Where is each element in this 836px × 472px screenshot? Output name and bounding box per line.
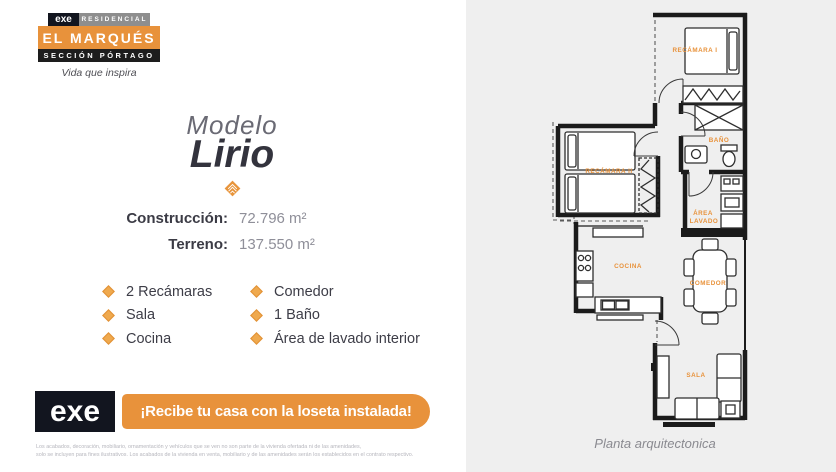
chair-icon	[684, 259, 694, 276]
disclaimer-line2: solo se incluyen para fines ilustrativos…	[36, 451, 448, 459]
feature-list: 2 Recámaras Sala Cocina Comedor 1 Baño	[104, 280, 444, 351]
chair-icon	[684, 289, 694, 306]
chair-icon	[726, 259, 736, 276]
room-label-comedor: COMEDOR	[690, 280, 726, 287]
diamond-bullet-icon	[102, 309, 115, 322]
diamond-bullet-icon	[250, 309, 263, 322]
room-label-bano: BAÑO	[709, 135, 730, 144]
toilet-icon	[721, 145, 737, 151]
feature-item: Sala	[104, 304, 252, 328]
promo-banner: ¡Recibe tu casa con la loseta instalada!	[122, 394, 430, 429]
specs: Construcción: 72.796 m² Terreno: 137.550…	[35, 210, 405, 262]
feature-label: Sala	[126, 307, 155, 323]
feature-label: Comedor	[274, 284, 334, 300]
model-name: Lirio	[100, 133, 364, 177]
exe-logo-small: exe	[48, 13, 79, 26]
land-value: 137.550 m²	[239, 236, 315, 253]
brand-tagline: Vida que inspira	[38, 67, 160, 79]
section-band: SECCIÓN PÓRTAGO	[38, 49, 160, 62]
diamond-bullet-icon	[102, 332, 115, 345]
diamond-bullet-icon	[250, 285, 263, 298]
legal-disclaimer: Los acabados, decoración, mobiliario, or…	[36, 443, 448, 459]
flyer: exe RESIDENCIAL EL MARQUÉS SECCIÓN PÓRTA…	[0, 0, 836, 472]
counter-icon	[593, 228, 643, 237]
exe-logo-large: exe	[35, 391, 115, 432]
room-label-recamara2: RECÁMARA II	[585, 166, 632, 175]
feature-label: 2 Recámaras	[126, 284, 212, 300]
feature-label: Cocina	[126, 331, 171, 347]
spec-construction: Construcción: 72.796 m²	[35, 210, 405, 227]
console-icon	[657, 356, 669, 398]
side-table-icon	[721, 401, 740, 418]
feature-item: 2 Recámaras	[104, 280, 252, 304]
spec-land: Terreno: 137.550 m²	[35, 236, 405, 253]
residencial-band: RESIDENCIAL	[79, 13, 150, 26]
feature-label: 1 Baño	[274, 307, 320, 323]
feature-item: 1 Baño	[252, 304, 444, 328]
room-label-recamara1: RECÁMARA I	[673, 45, 718, 54]
room-label-area: ÁREA	[693, 208, 713, 217]
feature-label: Área de lavado interior	[274, 331, 420, 347]
feature-item: Comedor	[252, 280, 444, 304]
chair-icon	[702, 239, 718, 250]
chair-icon	[726, 289, 736, 306]
room-label-lavado: LAVADO	[690, 218, 719, 225]
diamond-bullet-icon	[250, 332, 263, 345]
land-label: Terreno:	[35, 236, 228, 253]
disclaimer-line1: Los acabados, decoración, mobiliario, or…	[36, 443, 448, 451]
construction-value: 72.796 m²	[239, 210, 307, 227]
sink-icon	[685, 146, 707, 163]
brand-logo-block: exe RESIDENCIAL EL MARQUÉS SECCIÓN PÓRTA…	[38, 13, 160, 79]
chair-icon	[702, 313, 718, 324]
feature-item: Cocina	[104, 327, 252, 351]
floorplan-caption: Planta arquitectonica	[545, 436, 765, 451]
brand-name-band: EL MARQUÉS	[38, 26, 160, 49]
room-label-cocina: COCINA	[614, 263, 642, 270]
floorplan-drawing: RECÁMARA I BAÑO RECÁMARA II ÁREA LAVADO …	[545, 8, 765, 438]
diamond-brand-icon	[224, 180, 241, 197]
feature-item: Área de lavado interior	[252, 327, 444, 351]
room-label-sala: SALA	[686, 372, 705, 379]
diamond-bullet-icon	[102, 285, 115, 298]
construction-label: Construcción:	[35, 210, 228, 227]
